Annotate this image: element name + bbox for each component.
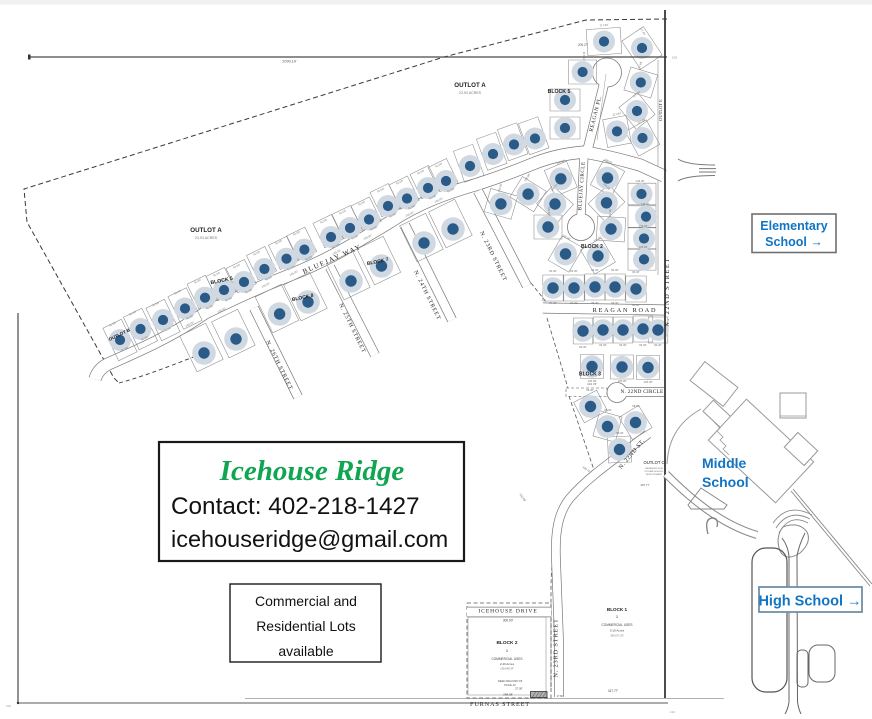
svg-text:COMMERCIAL USES: COMMERCIAL USES [491, 657, 522, 661]
svg-text:47.80': 47.80' [557, 695, 564, 698]
svg-text:REAGAN ROAD: REAGAN ROAD [593, 307, 658, 314]
svg-text:98.00′: 98.00′ [586, 388, 594, 392]
svg-text:84.00′: 84.00′ [591, 268, 599, 272]
svg-text:N. 22ND CIRCLE: N. 22ND CIRCLE [621, 389, 664, 395]
svg-text:23.93 ACRES: 23.93 ACRES [195, 236, 218, 240]
svg-text:RESERVED FOR: RESERVED FOR [645, 468, 663, 470]
svg-text:OUTLOT A: OUTLOT A [190, 227, 222, 234]
svg-text:84.00′: 84.00′ [599, 343, 607, 347]
svg-text:ICEHOUSE DRIVE: ICEHOUSE DRIVE [478, 609, 537, 615]
svg-text:117.84′: 117.84′ [599, 23, 609, 28]
svg-text:84.00′: 84.00′ [654, 343, 662, 347]
svg-text:High School →: High School → [758, 594, 861, 610]
svg-text:98.00′: 98.00′ [616, 431, 624, 435]
svg-text:FUTURE SCHOOL: FUTURE SCHOOL [645, 471, 665, 473]
svg-text:417.77': 417.77' [608, 689, 619, 693]
svg-text:105: 105 [672, 56, 677, 60]
svg-text:84.00′: 84.00′ [570, 269, 578, 273]
svg-text:icehouseridge@gmail.com: icehouseridge@gmail.com [171, 526, 448, 552]
svg-text:N. 23RD STREET: N. 23RD STREET [553, 618, 560, 677]
svg-text:OUTLOT A: OUTLOT A [454, 82, 486, 89]
svg-text:FURNAS STREET: FURNAS STREET [470, 701, 530, 708]
svg-text:102: 102 [6, 704, 11, 708]
svg-text:117.84′: 117.84′ [582, 52, 586, 61]
svg-text:84.00′: 84.00′ [549, 269, 557, 273]
svg-text:27.00': 27.00' [515, 687, 523, 691]
svg-text:105.38′: 105.38′ [643, 380, 653, 384]
svg-text:100.00′: 100.00′ [547, 206, 551, 216]
svg-text:145.00′: 145.00′ [640, 202, 650, 206]
svg-text:131.74′: 131.74′ [587, 382, 597, 386]
svg-text:OUTLOT C: OUTLOT C [643, 460, 664, 465]
svg-text:BLOCK 5: BLOCK 5 [548, 89, 571, 95]
svg-text:84.00′: 84.00′ [632, 270, 640, 274]
svg-text:399,071 SF: 399,071 SF [610, 634, 624, 638]
svg-text:300.00': 300.00' [503, 619, 514, 623]
svg-text:145.00′: 145.00′ [638, 245, 648, 249]
svg-text:145.00′: 145.00′ [638, 224, 648, 228]
svg-text:BLOCK 3: BLOCK 3 [579, 372, 601, 378]
svg-text:84.00′: 84.00′ [611, 301, 619, 305]
svg-text:84.00′: 84.00′ [619, 343, 627, 347]
svg-text:209.27': 209.27' [578, 43, 589, 47]
svg-text:108,648 SF: 108,648 SF [500, 667, 514, 671]
svg-text:134: 134 [670, 710, 675, 714]
svg-text:84.00′: 84.00′ [639, 343, 647, 347]
svg-text:School: School [702, 474, 749, 490]
svg-text:84.00′: 84.00′ [611, 268, 619, 272]
svg-text:DEVELOPMENT: DEVELOPMENT [646, 474, 663, 476]
svg-text:BLOCK 1: BLOCK 1 [607, 607, 628, 612]
svg-text:Middle: Middle [702, 455, 747, 471]
svg-text:Icehouse Ridge: Icehouse Ridge [219, 455, 405, 487]
svg-text:Elementary: Elementary [760, 219, 827, 233]
svg-text:84.00′: 84.00′ [579, 345, 587, 349]
svg-text:Commercial and: Commercial and [255, 593, 357, 609]
svg-text:145.00′: 145.00′ [635, 179, 645, 183]
svg-text:COMMERCIAL USES: COMMERCIAL USES [601, 623, 632, 627]
svg-text:2090.19 ': 2090.19 ' [282, 60, 298, 64]
svg-text:23.93 ACRES: 23.93 ACRES [459, 91, 482, 95]
svg-text:BLOCK 2: BLOCK 2 [496, 640, 517, 646]
svg-text:School →: School → [765, 235, 823, 249]
svg-text:BLOCK 2: BLOCK 2 [581, 244, 603, 250]
svg-text:497.77': 497.77' [640, 483, 650, 487]
svg-text:84.00′: 84.00′ [549, 301, 557, 305]
svg-text:98.00′: 98.00′ [604, 408, 612, 412]
svg-text:98.00′: 98.00′ [632, 404, 640, 408]
svg-text:N. 22ND STREET: N. 22ND STREET [664, 257, 671, 326]
svg-text:Contact: 402-218-1427: Contact: 402-218-1427 [171, 493, 420, 520]
svg-text:298.68': 298.68' [503, 693, 513, 697]
svg-text:84.00′: 84.00′ [591, 301, 599, 305]
svg-text:9.16 Acres: 9.16 Acres [610, 629, 625, 633]
svg-text:105.38′: 105.38′ [617, 379, 627, 383]
svg-text:2.49 Acres: 2.49 Acres [500, 662, 515, 666]
svg-text:Residential Lots: Residential Lots [256, 618, 356, 634]
svg-text:100.00′: 100.00′ [608, 208, 613, 218]
svg-text:available: available [278, 643, 333, 659]
svg-text:OUTLOT E: OUTLOT E [658, 99, 663, 121]
svg-text:84.00′: 84.00′ [570, 301, 578, 305]
